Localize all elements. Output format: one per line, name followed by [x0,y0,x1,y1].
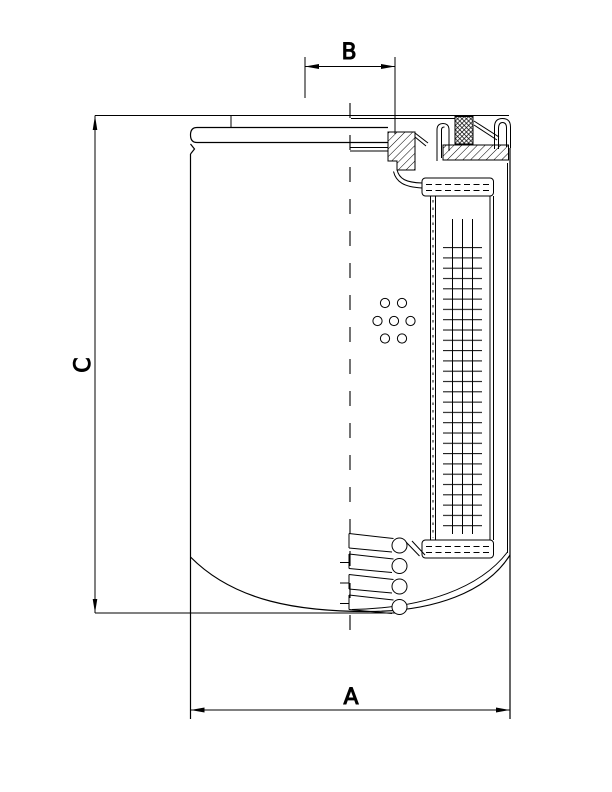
filter-element [406,178,494,558]
lid-sheet-diag-2 [474,125,497,140]
perforation-hole [380,334,389,343]
boss-neck-inner [394,172,423,189]
perforation-hole [373,316,382,325]
perforation-hole [397,334,406,343]
mounting-plate [443,145,509,160]
dimension-a-arrow-left [191,708,205,713]
perforation-hole [389,316,398,325]
rim-notch [191,144,195,154]
dimension-b: B [305,40,395,134]
perforation-hole [397,298,406,307]
filter-cross-section-drawing: B C A [0,0,612,792]
dimension-c-arrow-bottom [93,599,98,613]
dimension-a: A [191,685,511,713]
gasket-seal [455,117,473,145]
seam-curl-outer [495,119,511,150]
perforation-holes [373,298,415,343]
dimension-label-c: C [71,357,96,372]
dimension-label-a: A [343,685,358,710]
can-bottom-dome-inner [352,552,508,610]
lid-sheet-slant-2 [415,137,426,146]
end-cap-bottom-seat-diag-1 [406,542,420,556]
thread-boss [388,132,415,170]
dimension-label-b: B [341,40,356,65]
dimension-b-arrow-right [381,64,395,69]
boss-neck-outer [397,170,422,184]
spring-coil [349,534,407,554]
spring [340,534,407,615]
lid-rim [191,128,389,143]
dimension-b-arrow-left [305,64,319,69]
perforation-hole [406,316,415,325]
perforation-hole [380,298,389,307]
drawing-page: B C A [0,0,612,792]
dimension-c-arrow-top [93,116,98,131]
dimension-a-arrow-right [496,708,510,713]
end-cap-top [422,178,494,196]
end-cap-bottom [422,540,494,558]
